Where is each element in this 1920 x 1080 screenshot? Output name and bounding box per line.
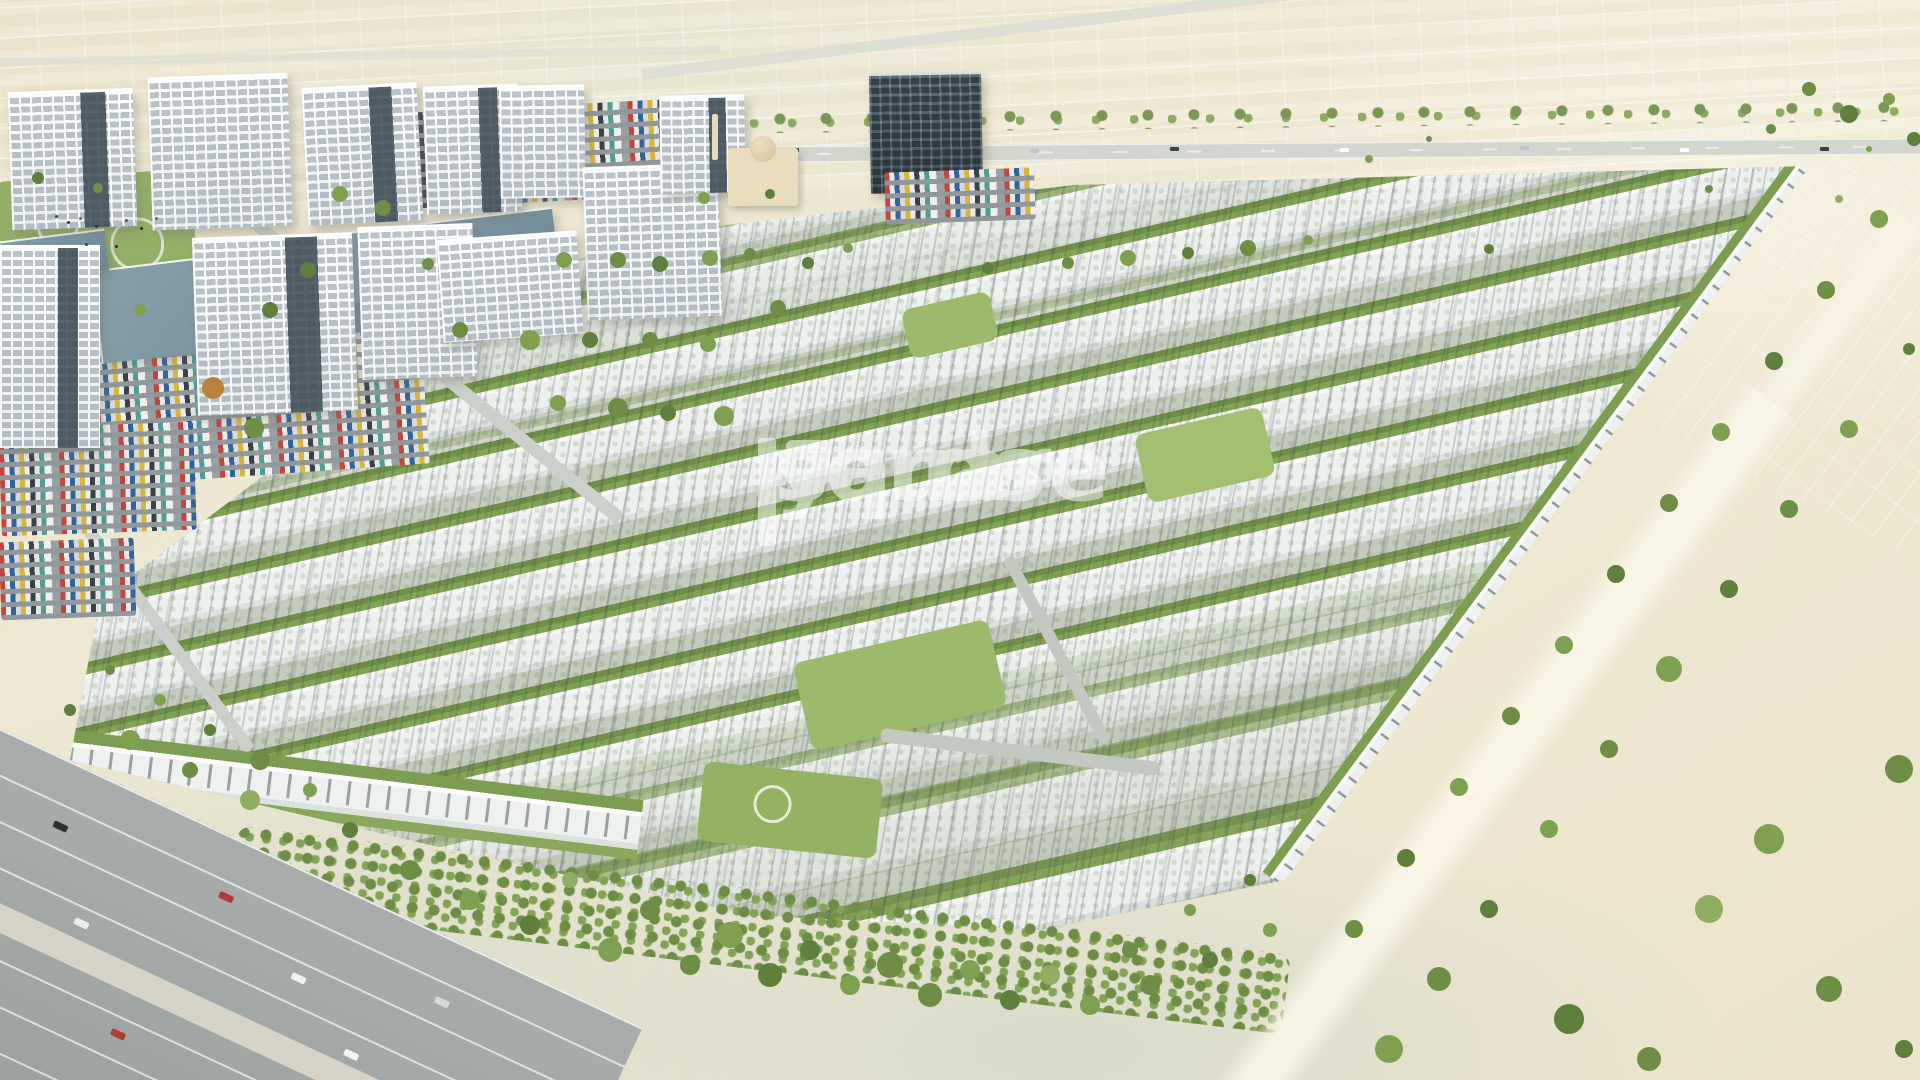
apartment-building xyxy=(8,88,138,230)
mosque-minaret xyxy=(712,114,718,160)
apartment-building xyxy=(147,73,292,231)
mosque xyxy=(728,148,798,206)
parking-lot xyxy=(0,538,136,621)
apartment-building xyxy=(301,82,423,226)
desert-trees-right xyxy=(1870,210,1888,228)
watermark-line2: yards xyxy=(774,428,1042,511)
mosque-dome xyxy=(750,136,776,162)
apartment-building xyxy=(437,230,584,343)
parking-lot xyxy=(884,167,1036,224)
desert-trees-bottom xyxy=(400,860,420,880)
apartment-building xyxy=(499,84,586,198)
apartment-building xyxy=(0,245,100,448)
trees-apartment-zone xyxy=(332,186,348,202)
apartment-building xyxy=(192,232,358,415)
aerial-render: square yards xyxy=(0,0,1920,1080)
people-in-park xyxy=(55,215,58,218)
